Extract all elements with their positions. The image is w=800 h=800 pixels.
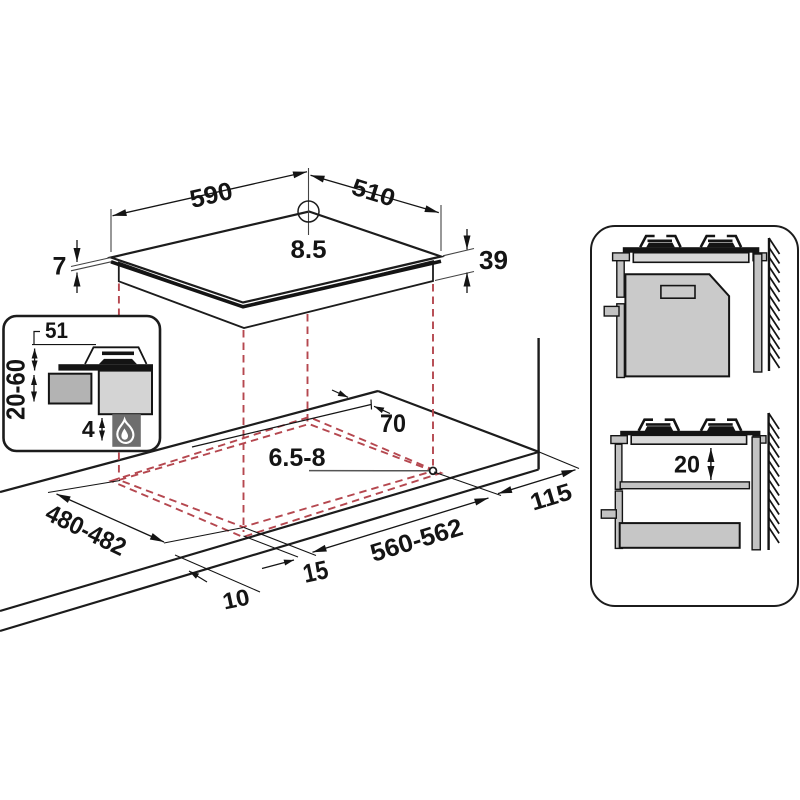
- svg-text:8.5: 8.5: [291, 236, 327, 264]
- svg-text:51: 51: [45, 318, 68, 343]
- svg-text:39: 39: [479, 245, 508, 275]
- svg-text:4: 4: [82, 416, 95, 442]
- svg-text:20: 20: [674, 452, 700, 479]
- svg-text:70: 70: [380, 410, 406, 438]
- svg-text:6.5-8: 6.5-8: [269, 444, 326, 472]
- svg-text:7: 7: [53, 253, 67, 281]
- svg-text:20-60: 20-60: [1, 359, 31, 420]
- svg-text:10: 10: [220, 583, 252, 614]
